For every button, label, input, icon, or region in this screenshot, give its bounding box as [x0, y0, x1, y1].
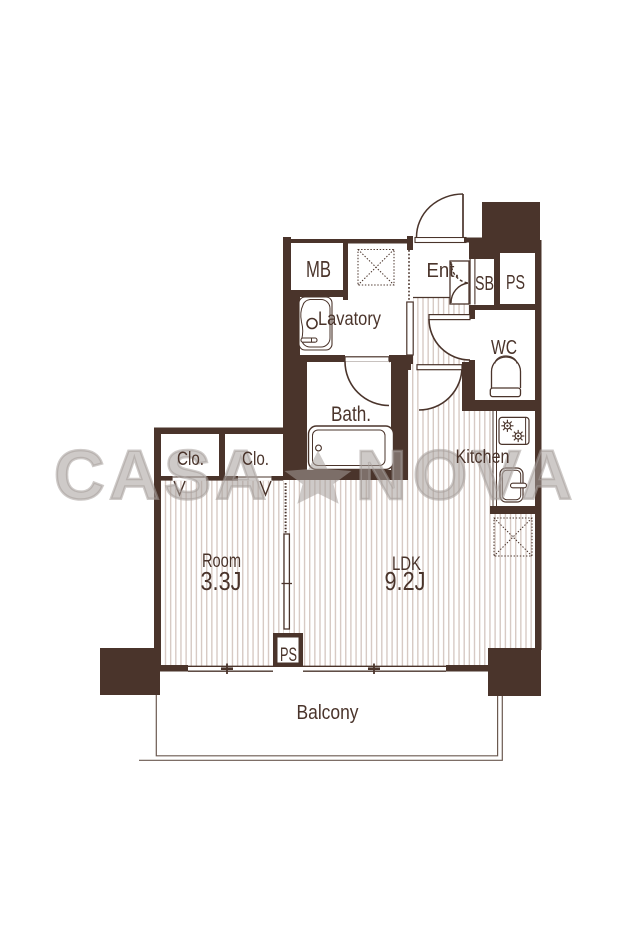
svg-text:SB: SB — [475, 272, 494, 295]
svg-text:Lavatory: Lavatory — [318, 309, 381, 330]
svg-text:Clo.: Clo. — [177, 448, 204, 470]
svg-text:MB: MB — [306, 256, 331, 282]
svg-text:PS: PS — [506, 271, 525, 294]
svg-text:9.2J: 9.2J — [385, 566, 426, 596]
svg-text:Clo.: Clo. — [242, 448, 269, 470]
svg-text:Ent.: Ent. — [427, 260, 460, 282]
svg-text:PS: PS — [280, 645, 297, 666]
svg-text:Bath.: Bath. — [331, 402, 371, 426]
svg-text:3.3J: 3.3J — [201, 566, 242, 596]
svg-text:Kitchen: Kitchen — [456, 447, 510, 468]
svg-text:Balcony: Balcony — [297, 702, 359, 724]
svg-text:WC: WC — [491, 337, 517, 359]
